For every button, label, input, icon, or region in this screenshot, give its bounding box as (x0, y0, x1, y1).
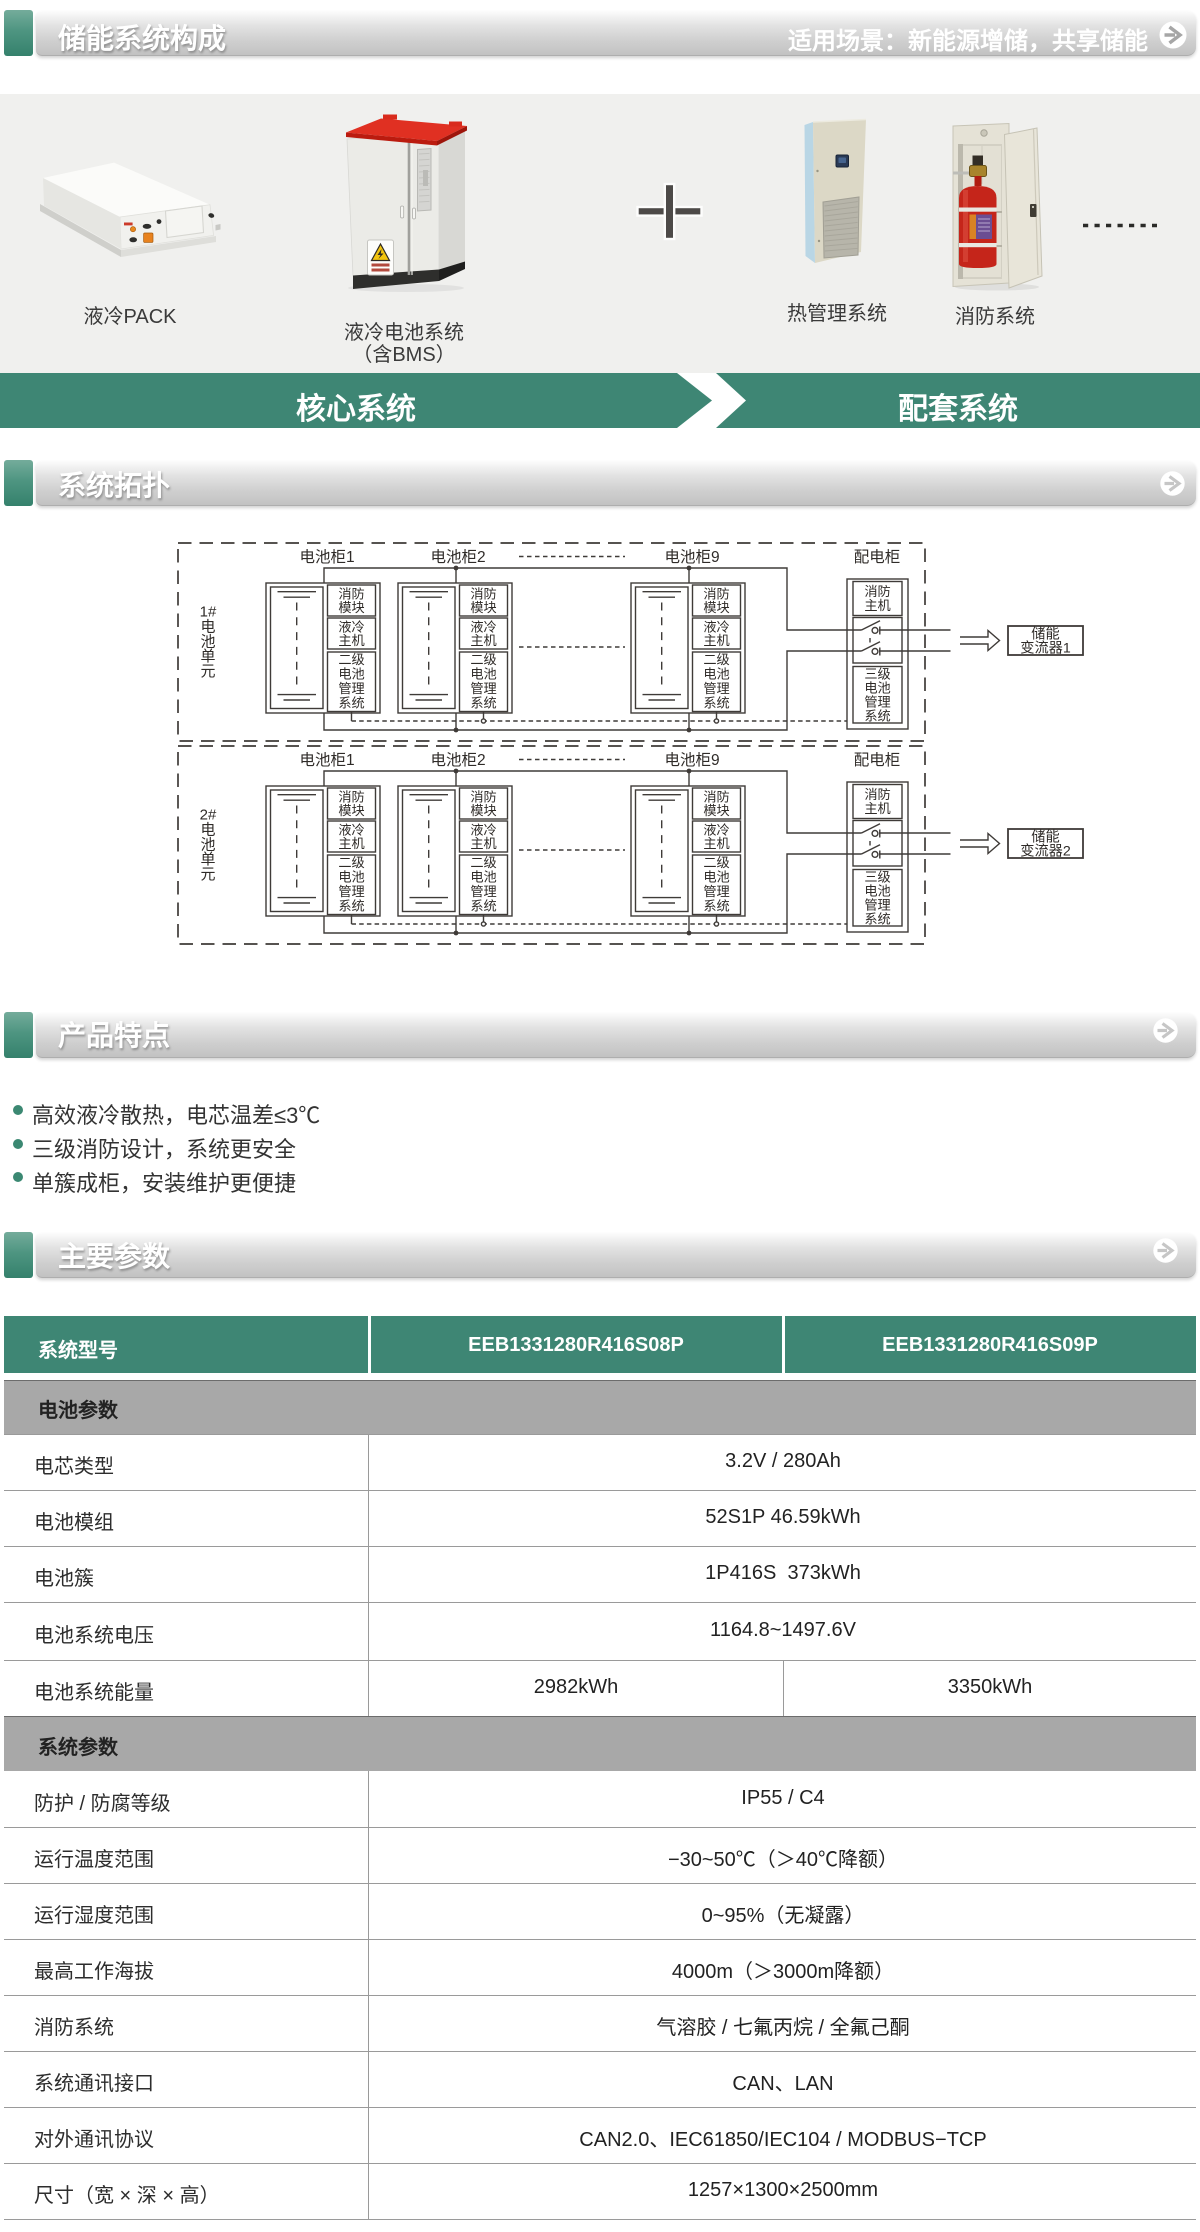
svg-text:变流器2: 变流器2 (1020, 844, 1071, 860)
svg-text:2#: 2# (200, 807, 217, 824)
svg-text:1#: 1# (200, 604, 217, 621)
svg-text:变流器1: 变流器1 (1020, 641, 1071, 657)
